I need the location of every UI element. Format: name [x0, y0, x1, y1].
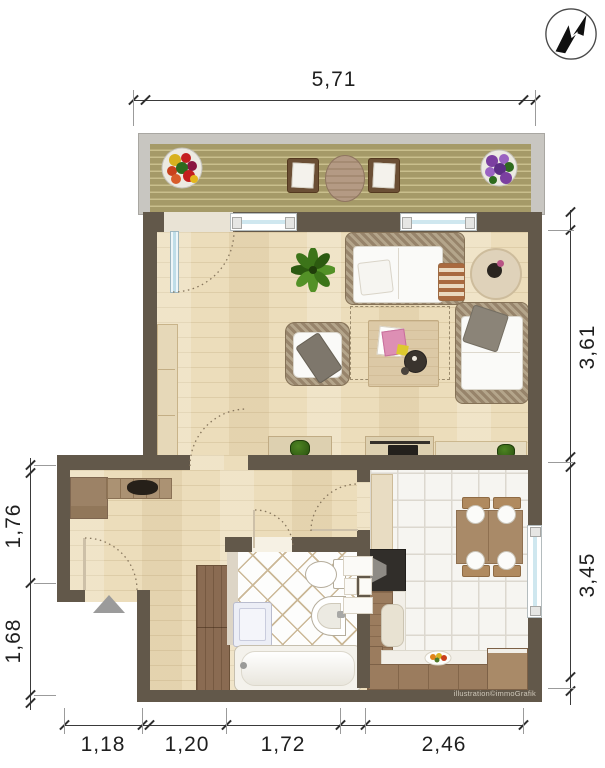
dim-top: 5,71 — [284, 68, 384, 92]
dim-bottom-3: 1,72 — [253, 733, 313, 757]
dim-bottom-1: 1,18 — [73, 733, 133, 757]
dim-extension — [548, 462, 574, 463]
dim-extension — [64, 708, 65, 734]
dim-extension — [535, 90, 536, 126]
dim-extension — [340, 708, 341, 734]
dim-right-upper: 3,61 — [576, 317, 600, 377]
dim-line-bottom — [64, 725, 523, 726]
door-swing-arcs — [0, 0, 605, 768]
dim-right-lower: 3,45 — [576, 545, 600, 605]
dim-extension — [133, 90, 134, 126]
watermark: illustration©immoGrafik — [402, 689, 536, 698]
dim-extension — [142, 708, 143, 734]
dim-line-top — [133, 100, 535, 101]
dim-bottom-4: 2,46 — [414, 733, 474, 757]
dim-extension — [34, 583, 56, 584]
dim-extension — [34, 695, 56, 696]
dim-left-upper: 1,76 — [2, 496, 26, 556]
dim-extension — [226, 708, 227, 734]
floor-plan-canvas: illustration©immoGrafik 5,71 1,18 1,20 1… — [0, 0, 605, 768]
dim-extension — [523, 708, 524, 734]
dim-left-lower: 1,68 — [2, 611, 26, 671]
dim-extension — [34, 465, 56, 466]
dim-extension — [548, 688, 574, 689]
dim-bottom-2: 1,20 — [157, 733, 217, 757]
dim-extension — [548, 230, 574, 231]
dim-extension — [365, 708, 366, 734]
